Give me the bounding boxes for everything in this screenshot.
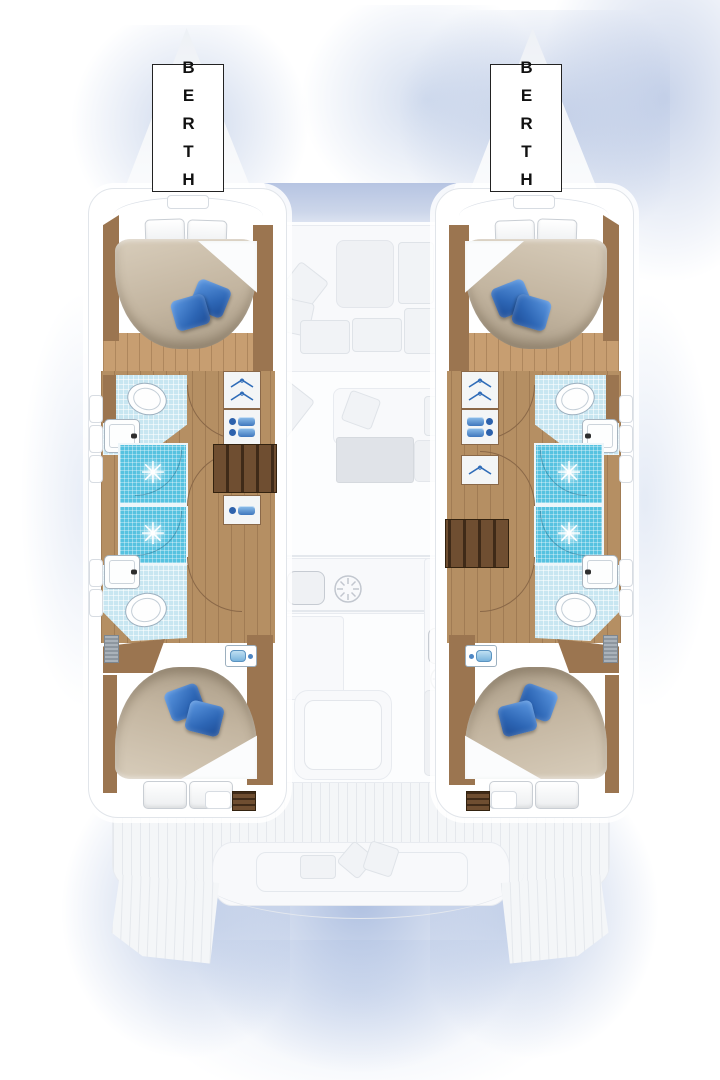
stove-burner-icon [332, 573, 364, 605]
vent-icon [603, 635, 618, 663]
towel-icon [467, 417, 493, 426]
cockpit-steps [232, 791, 256, 811]
hanger-icon [229, 378, 255, 389]
port-stern-platform [111, 874, 220, 964]
sink-icon [104, 555, 140, 589]
side-locker [89, 455, 103, 483]
towel-locker [461, 409, 499, 445]
transom-curve [196, 868, 524, 919]
towel-locker [223, 409, 261, 445]
hanging-locker [461, 455, 499, 485]
faucet-icon [248, 654, 253, 659]
cabin-vanity [465, 645, 497, 667]
towel-icon [467, 428, 493, 437]
side-locker [89, 559, 103, 587]
faucet-icon [470, 654, 475, 659]
starboard-berth-label: BERTH [490, 64, 562, 192]
deck-hatch [205, 791, 231, 809]
towel-locker [223, 495, 261, 525]
head-cabinet [606, 375, 619, 423]
towel-icon [229, 506, 255, 515]
companionway-steps [213, 444, 277, 493]
starboard-hull: ✳ ✳ [435, 188, 634, 818]
head-cabinet [103, 375, 116, 423]
side-locker [619, 425, 633, 453]
side-locker [89, 589, 103, 617]
shower-drain-icon: ✳ [140, 520, 165, 550]
bed-pillow [143, 781, 187, 809]
cushion [398, 242, 434, 304]
floor-plan-canvas: ✳ ✳ [0, 0, 720, 1080]
cockpit-steps [466, 791, 490, 811]
cockpit-table-top [304, 700, 382, 770]
companionway-steps [445, 519, 509, 568]
port-hull: ✳ ✳ [88, 188, 287, 818]
towel-icon [229, 417, 255, 426]
shower-drain-icon: ✳ [140, 459, 165, 489]
cabin-trim [605, 675, 619, 793]
hanging-locker [461, 371, 499, 409]
shower-stall: ✳ [534, 443, 604, 505]
hanger-icon [467, 465, 493, 476]
starboard-stern-platform [501, 874, 610, 964]
vanity-bowl-icon [230, 650, 246, 662]
vent-icon [104, 635, 119, 663]
side-locker [619, 395, 633, 423]
galley-sink [287, 571, 325, 605]
towel-icon [229, 428, 255, 437]
hanger-icon [229, 391, 255, 402]
vanity-bowl-icon [477, 650, 493, 662]
side-locker [619, 559, 633, 587]
side-locker [619, 589, 633, 617]
side-locker [619, 455, 633, 483]
cushion [352, 318, 402, 352]
saloon-table [336, 437, 414, 483]
galley-bulkhead [258, 555, 460, 557]
shower-drain-icon: ✳ [556, 459, 581, 489]
port-berth-label: BERTH [152, 64, 224, 192]
shower-drain-icon: ✳ [556, 520, 581, 550]
shower-stall: ✳ [118, 443, 188, 505]
cushion [300, 320, 350, 354]
side-locker [89, 425, 103, 453]
cabin-vanity [225, 645, 257, 667]
bed-pillow [535, 781, 579, 809]
sink-icon [582, 555, 618, 589]
deck-hatch [491, 791, 517, 809]
port-berth-label-text: BERTH [178, 58, 198, 198]
starboard-berth-label-text: BERTH [516, 58, 536, 198]
hanger-icon [467, 391, 493, 402]
hanger-icon [467, 378, 493, 389]
hanging-locker [223, 371, 261, 409]
forward-console [336, 240, 394, 308]
side-locker [89, 395, 103, 423]
